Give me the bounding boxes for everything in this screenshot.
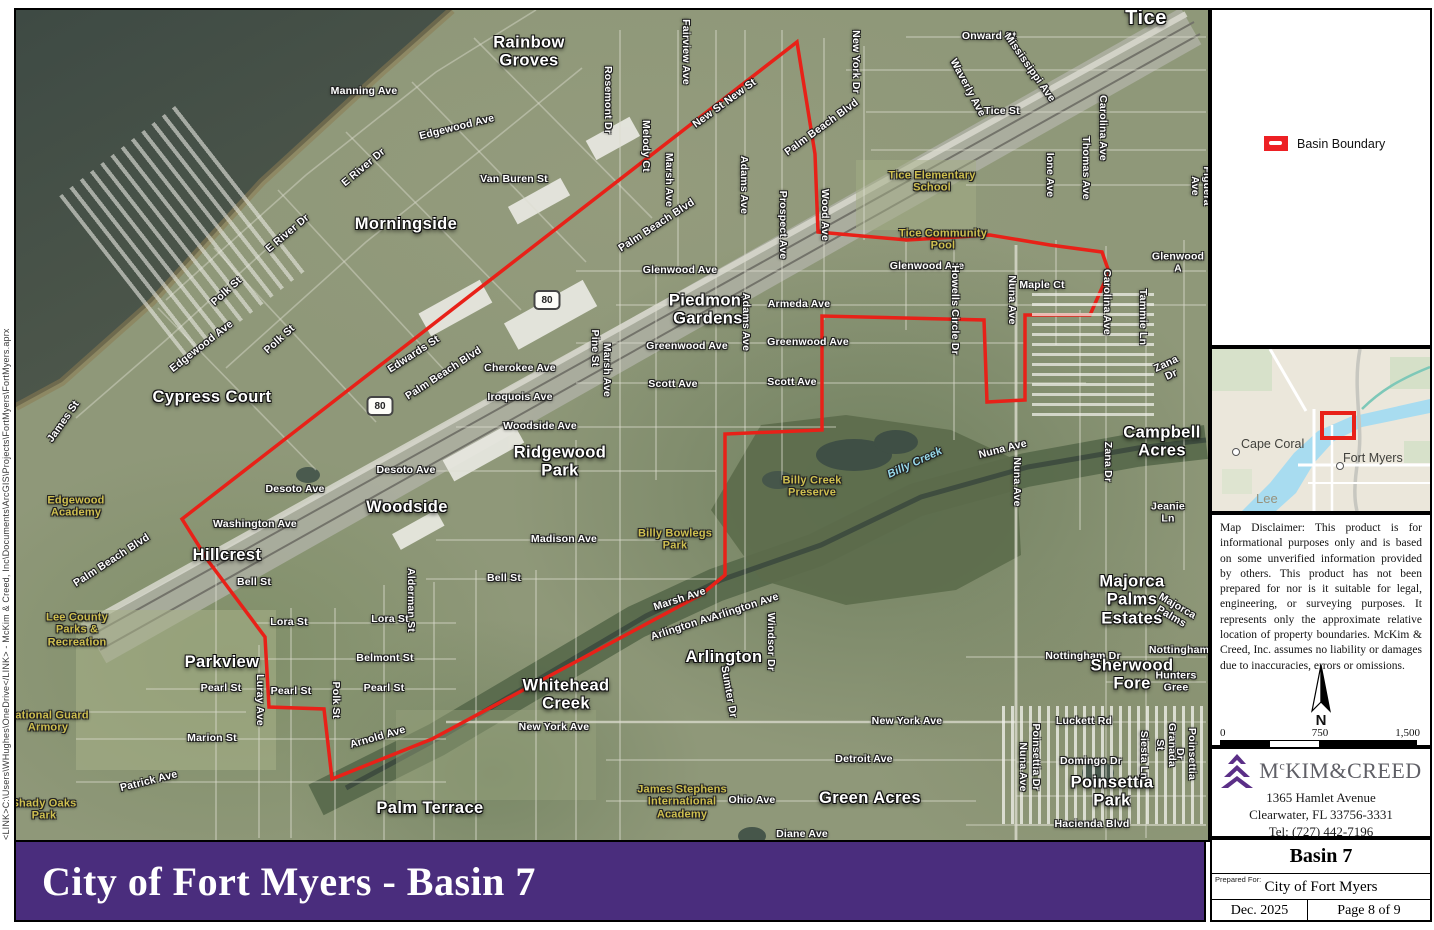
map-label: Billy Creek — [886, 445, 945, 481]
map-label: Ione Ave — [1043, 153, 1055, 198]
map-label: Marsh Ave — [600, 343, 612, 397]
map-label: Washington Ave — [213, 519, 297, 531]
map-label: Adams Ave — [737, 156, 749, 214]
map-label: Palm Beach Blvd — [783, 97, 861, 158]
map-label: Madison Ave — [531, 534, 597, 546]
scale-start: 0 — [1220, 727, 1226, 739]
map-label: Pine St — [588, 330, 600, 367]
title-block: Basin 7 Prepared For: City of Fort Myers… — [1210, 838, 1432, 922]
map-label: Luckett Rd — [1056, 716, 1112, 728]
north-arrow: N — [1212, 665, 1430, 729]
banner-title: City of Fort Myers - Basin 7 — [16, 858, 536, 905]
map-label: Zana Dr — [1101, 442, 1113, 483]
map-label: E River Dr — [340, 147, 388, 190]
file-path-text: <LINK>C:\Users\WHughes\OneDrive</LINK> -… — [1, 12, 11, 840]
map-label: Detroit Ave — [835, 754, 892, 766]
map-label: Nottingham — [1149, 645, 1209, 657]
map-label: Rosemont Dr — [601, 66, 613, 134]
map-label: Figuera Ave — [1188, 166, 1210, 205]
map-label: Windsor Dr — [764, 613, 776, 672]
map-label: Mississippi Ave — [1001, 31, 1057, 104]
map-label: New York Ave — [519, 722, 590, 734]
map-label: Arlington — [686, 648, 763, 666]
map-label: Desoto Ave — [266, 484, 325, 496]
map-label: Arnold Ave — [349, 724, 407, 751]
map-label: Fairview Ave — [679, 19, 691, 85]
inset-label-cape-coral: Cape Coral — [1241, 437, 1304, 451]
map-label: Marsh Ave — [652, 586, 707, 614]
map-label: Pearl St — [364, 683, 405, 695]
map-label: Greenwood Ave — [767, 337, 849, 349]
prepared-for-label: Prepared For: — [1215, 875, 1261, 884]
map-label: Carolina Ave — [1096, 95, 1108, 161]
map-label: Thomas Ave — [1079, 136, 1091, 200]
map-label: James Stephens International Academy — [637, 784, 727, 821]
map-label: New St New St — [691, 77, 759, 131]
map-disclaimer: Map Disclaimer: This product is for info… — [1220, 521, 1422, 674]
map-label: Edgewood Ave — [418, 113, 495, 143]
map-label: Glenwood A — [1152, 251, 1204, 275]
map-label: Morningside — [355, 215, 457, 233]
map-label: Scott Ave — [648, 379, 697, 391]
map-label: Prospect Ave — [776, 191, 788, 260]
map-label: Polk St — [329, 682, 341, 719]
inset-label-lee-county: Lee — [1256, 491, 1278, 506]
map-label: E River Dr — [264, 213, 312, 256]
map-label: Whitehead Creek — [522, 677, 609, 714]
map-label: Nuna Ave — [1016, 742, 1028, 791]
map-label: Cypress Court — [153, 388, 272, 406]
prepared-for-value: City of Fort Myers — [1265, 879, 1378, 895]
map-label: Zana Dr — [1146, 351, 1191, 389]
map-label: Nuna Ave — [1005, 275, 1017, 324]
map-label: Siesta Ln — [1137, 731, 1149, 779]
legend-panel: Basin Boundary — [1210, 8, 1432, 347]
map-label: Tammie Ln — [1136, 289, 1148, 345]
scale-end: 1,500 — [1395, 727, 1420, 739]
map-label: Patrick Ave — [119, 769, 179, 795]
map-label: Adams Ave — [739, 293, 751, 351]
company-name: McKIM&CREED — [1259, 758, 1421, 784]
map-sheet: <LINK>C:\Users\WHughes\OneDrive</LINK> -… — [0, 0, 1434, 930]
map-label: Wood Ave — [818, 189, 830, 241]
inset-label-fort-myers: Fort Myers — [1343, 451, 1403, 465]
company-panel: McKIM&CREED 1365 Hamlet Avenue Clearwate… — [1210, 747, 1432, 838]
map-label: Nuna Ave — [1010, 457, 1022, 506]
map-label: Ridgewood Park — [514, 444, 607, 481]
basin-title: Basin 7 — [1212, 840, 1430, 874]
map-label: Billy Creek Preserve — [782, 475, 841, 500]
company-address-line1: 1365 Hamlet Avenue — [1212, 789, 1430, 806]
map-label: Luray Ave — [253, 674, 265, 726]
map-label: Armeda Ave — [768, 299, 831, 311]
map-label: Bell St — [487, 573, 521, 585]
map-labels-layer: Onward StRainbow GrovesManning AveEdgewo… — [16, 10, 1208, 840]
scale-numbers: 0 750 1,500 — [1220, 727, 1420, 740]
map-label: Iroquois Ave — [487, 392, 552, 404]
map-label: Glenwood Ave — [643, 265, 718, 277]
overview-inset-map: Cape Coral Fort Myers Lee — [1210, 347, 1432, 513]
map-label: Tice Community Pool — [899, 228, 987, 253]
map-label: Bell St — [237, 577, 271, 589]
basin-extent-indicator — [1320, 411, 1356, 440]
map-label: Piedmont Gardens — [669, 292, 747, 329]
map-label: Shady Oaks Park — [14, 798, 76, 823]
map-label: New York Ave — [872, 716, 943, 728]
swatch-dash — [1269, 141, 1282, 145]
map-label: Pearl St — [201, 683, 242, 695]
basin-boundary-swatch — [1264, 136, 1288, 151]
map-label: Melody Ct — [639, 120, 651, 172]
map-label: New York Dr — [849, 30, 861, 94]
map-label: Cherokee Ave — [484, 363, 556, 375]
map-label: Woodside Ave — [503, 421, 577, 433]
page-number-cell: Page 8 of 9 — [1308, 900, 1430, 922]
highway-80-shield: 80 — [534, 290, 561, 310]
aerial-map: Onward StRainbow GrovesManning AveEdgewo… — [14, 8, 1210, 842]
map-label: Lee County Parks & Recreation — [46, 612, 108, 649]
map-label: Pearl St — [271, 686, 312, 698]
map-label: Sumter Dr — [718, 665, 739, 719]
legend-item: Basin Boundary — [1264, 136, 1385, 151]
map-label: Marion St — [187, 733, 237, 745]
map-label: Poinsettia Dr — [1029, 723, 1041, 790]
map-label: Van Buren St — [480, 174, 548, 186]
map-label: Desoto Ave — [377, 465, 436, 477]
map-label: Woodside — [366, 498, 448, 516]
map-label: Lora St — [371, 614, 409, 626]
map-label: Edgewood Academy — [47, 495, 104, 520]
map-label: Polk St — [262, 323, 297, 356]
title-banner: City of Fort Myers - Basin 7 — [14, 840, 1206, 922]
map-label: Hacienda Blvd — [1055, 819, 1130, 831]
map-label: Marsh Ave — [662, 153, 674, 207]
sidebar: Basin Boundary Cape Coral — [1210, 8, 1432, 922]
prepared-for-row: Prepared For: City of Fort Myers — [1212, 874, 1430, 900]
map-label: Campbell Acres — [1123, 424, 1200, 461]
map-label: Polk St — [209, 275, 244, 308]
cape-coral-marker — [1232, 448, 1240, 456]
legend-label: Basin Boundary — [1297, 137, 1385, 151]
map-label: Maple Ct — [1019, 280, 1064, 292]
map-label: Scott Ave — [767, 377, 816, 389]
map-label: Tice — [1125, 8, 1167, 29]
map-label: Granada St — [1153, 723, 1177, 767]
map-label: Tice Elementary School — [888, 170, 975, 195]
map-label: Waverly Ave — [947, 57, 987, 119]
mckim-creed-logo — [1220, 753, 1254, 789]
map-label: Parkview — [185, 653, 260, 671]
map-label: Manning Ave — [331, 86, 398, 98]
map-label: Lora St — [270, 617, 308, 629]
map-label: Palm Terrace — [376, 799, 483, 817]
map-label: James St — [46, 399, 83, 445]
map-label: Palm Beach Blvd — [72, 532, 152, 590]
notes-panel: Map Disclaimer: This product is for info… — [1210, 513, 1432, 747]
map-label: Greenwood Ave — [646, 341, 728, 353]
map-label: Jeanie Ln — [1148, 501, 1188, 525]
map-label: National Guard Armory — [14, 710, 89, 735]
scale-mid: 750 — [1312, 727, 1329, 739]
map-label: Billy Bowlegs Park — [638, 528, 712, 553]
map-label: Hillcrest — [193, 546, 262, 564]
date-cell: Dec. 2025 — [1212, 900, 1308, 922]
map-label: Green Acres — [819, 789, 921, 807]
map-label: Tice St — [984, 106, 1020, 118]
map-label: Belmont St — [356, 653, 413, 665]
map-label: Carolina Ave — [1100, 269, 1112, 335]
map-label: Ohio Ave — [729, 795, 776, 807]
map-label: Hunters Gree — [1155, 670, 1196, 694]
date-page-row: Dec. 2025 Page 8 of 9 — [1212, 900, 1430, 922]
map-label: Rainbow Groves — [493, 34, 565, 71]
highway-80-shield: 80 — [367, 396, 394, 416]
map-label: Edwards St — [386, 334, 442, 376]
map-label: Edgewood Ave — [168, 319, 236, 376]
map-label: Domingo Dr — [1060, 756, 1122, 768]
map-label: Palm Beach Blvd — [617, 197, 697, 255]
map-label: Howells Circle Dr — [948, 265, 960, 355]
company-address-line2: Clearwater, FL 33756-3331 — [1212, 806, 1430, 823]
